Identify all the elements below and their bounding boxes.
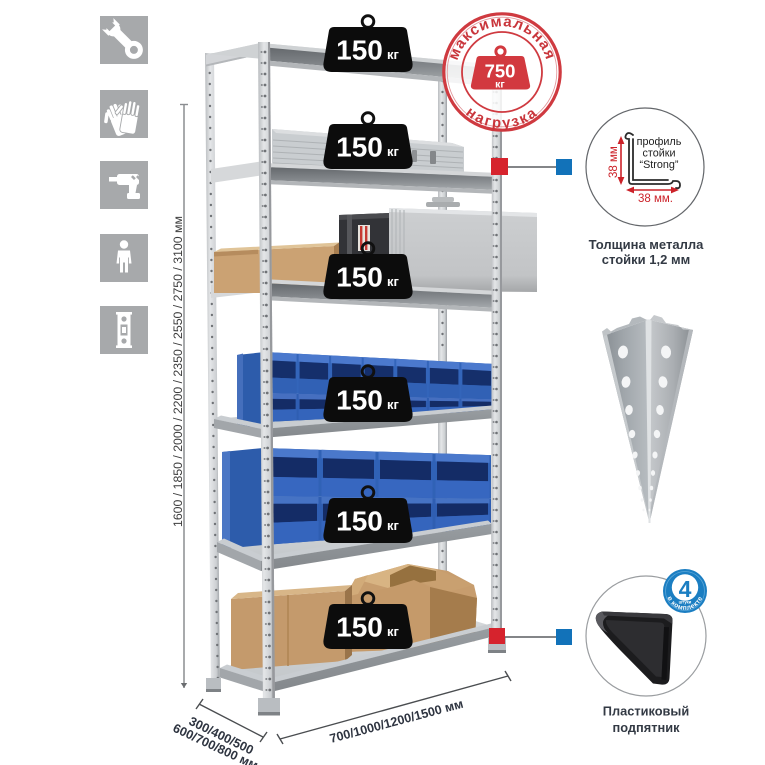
svg-text:подпятник: подпятник [613, 720, 681, 735]
svg-text:“Strong”: “Strong” [639, 159, 678, 171]
svg-text:38 мм.: 38 мм. [638, 193, 673, 205]
svg-text:профиль: профиль [637, 136, 682, 148]
svg-text:1600 / 1850 / 2000 / 2200 / 23: 1600 / 1850 / 2000 / 2200 / 2350 / 2550 … [171, 216, 185, 527]
svg-text:стойки 1,2 мм: стойки 1,2 мм [602, 252, 690, 267]
svg-text:штуки: штуки [679, 599, 692, 604]
svg-text:150: 150 [336, 35, 383, 66]
svg-text:кг: кг [495, 79, 505, 91]
svg-text:стойки: стойки [642, 148, 675, 160]
svg-text:4: 4 [679, 576, 692, 602]
svg-text:Пластиковый: Пластиковый [603, 704, 689, 719]
svg-text:38 мм: 38 мм [608, 146, 620, 178]
svg-text:кг: кг [387, 47, 400, 62]
svg-text:Толщина металла: Толщина металла [589, 237, 704, 252]
